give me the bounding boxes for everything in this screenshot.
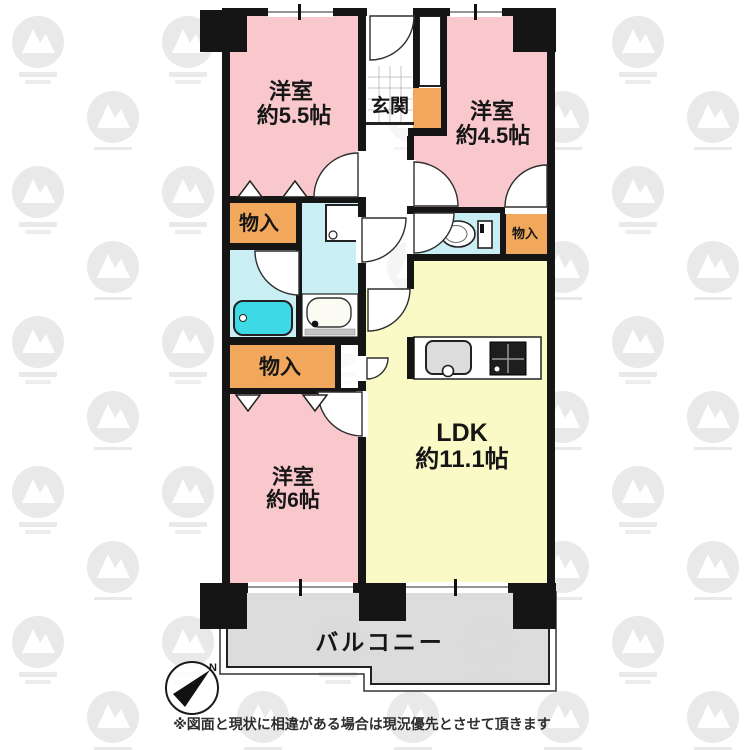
washing-machine-pan-icon [326, 205, 359, 241]
bedroom-6-name: 洋室 [272, 465, 314, 489]
ldk-name: LDK [436, 419, 487, 447]
bedroom-5-5-size: 約5.5帖 [257, 103, 332, 128]
bedroom-4-5-size: 約4.5帖 [456, 123, 531, 148]
kitchen-counter [407, 337, 541, 379]
footnote-text: ※図面と現状に相違がある場合は現況優先とさせて頂きます [173, 716, 551, 732]
compass-north-label: N [209, 662, 217, 674]
closet-bottom-left-label: 物入 [259, 355, 301, 379]
ldk-size: 約11.1帖 [415, 445, 508, 473]
closet-top-left-label: 物入 [239, 211, 279, 235]
washbasin-icon [302, 294, 358, 337]
storage-nook [341, 345, 358, 388]
floorplan-svg: バルコニー [0, 0, 750, 750]
bedroom-5-5-name: 洋室 [269, 79, 313, 104]
stove-icon [490, 342, 526, 375]
shoe-cabinet-icon [419, 16, 441, 86]
closet-right-label: 物入 [512, 226, 538, 241]
balcony-label: バルコニー [315, 629, 445, 655]
entrance-label: 玄関 [371, 94, 409, 117]
bedroom-6-size: 約6帖 [266, 488, 320, 512]
kitchen-sink-icon [426, 341, 471, 377]
floorplan-image: バルコニー [0, 0, 750, 750]
compass-icon: N [166, 662, 218, 714]
bathtub-icon [234, 301, 292, 335]
bedroom-4-5-name: 洋室 [470, 99, 514, 124]
closet-top-right [413, 88, 441, 128]
